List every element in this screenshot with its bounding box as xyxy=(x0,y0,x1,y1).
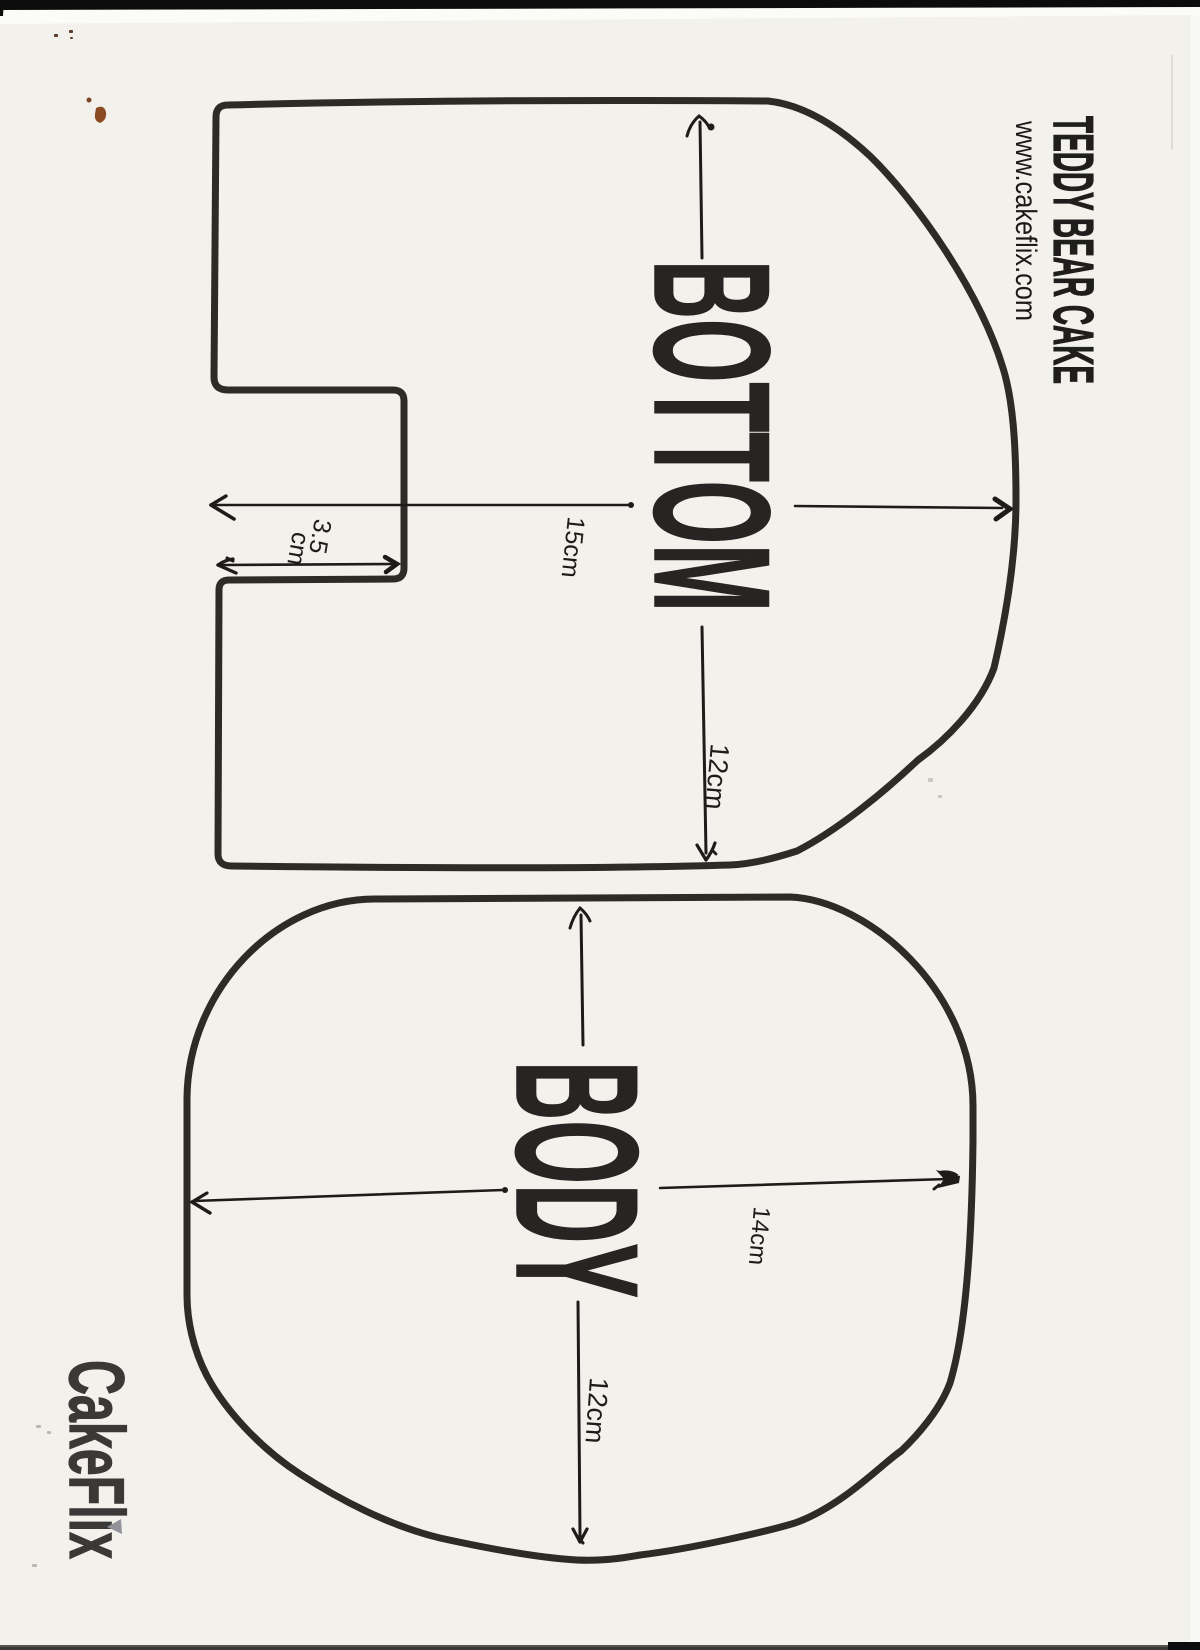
svg-text:BOTTOM: BOTTOM xyxy=(620,260,804,612)
svg-text:12cm: 12cm xyxy=(699,742,735,810)
svg-text:12cm: 12cm xyxy=(579,1377,614,1445)
svg-text:CakeFlıx: CakeFlıx xyxy=(53,1360,141,1559)
svg-text:TEDDY BEAR CAKE: TEDDY BEAR CAKE xyxy=(1041,116,1105,384)
svg-text:www.cakeflix.com: www.cakeflix.com xyxy=(1009,120,1042,321)
svg-text:BODY: BODY xyxy=(480,1061,675,1298)
svg-text:14cm: 14cm xyxy=(743,1205,775,1266)
svg-text:cm: cm xyxy=(281,530,314,568)
